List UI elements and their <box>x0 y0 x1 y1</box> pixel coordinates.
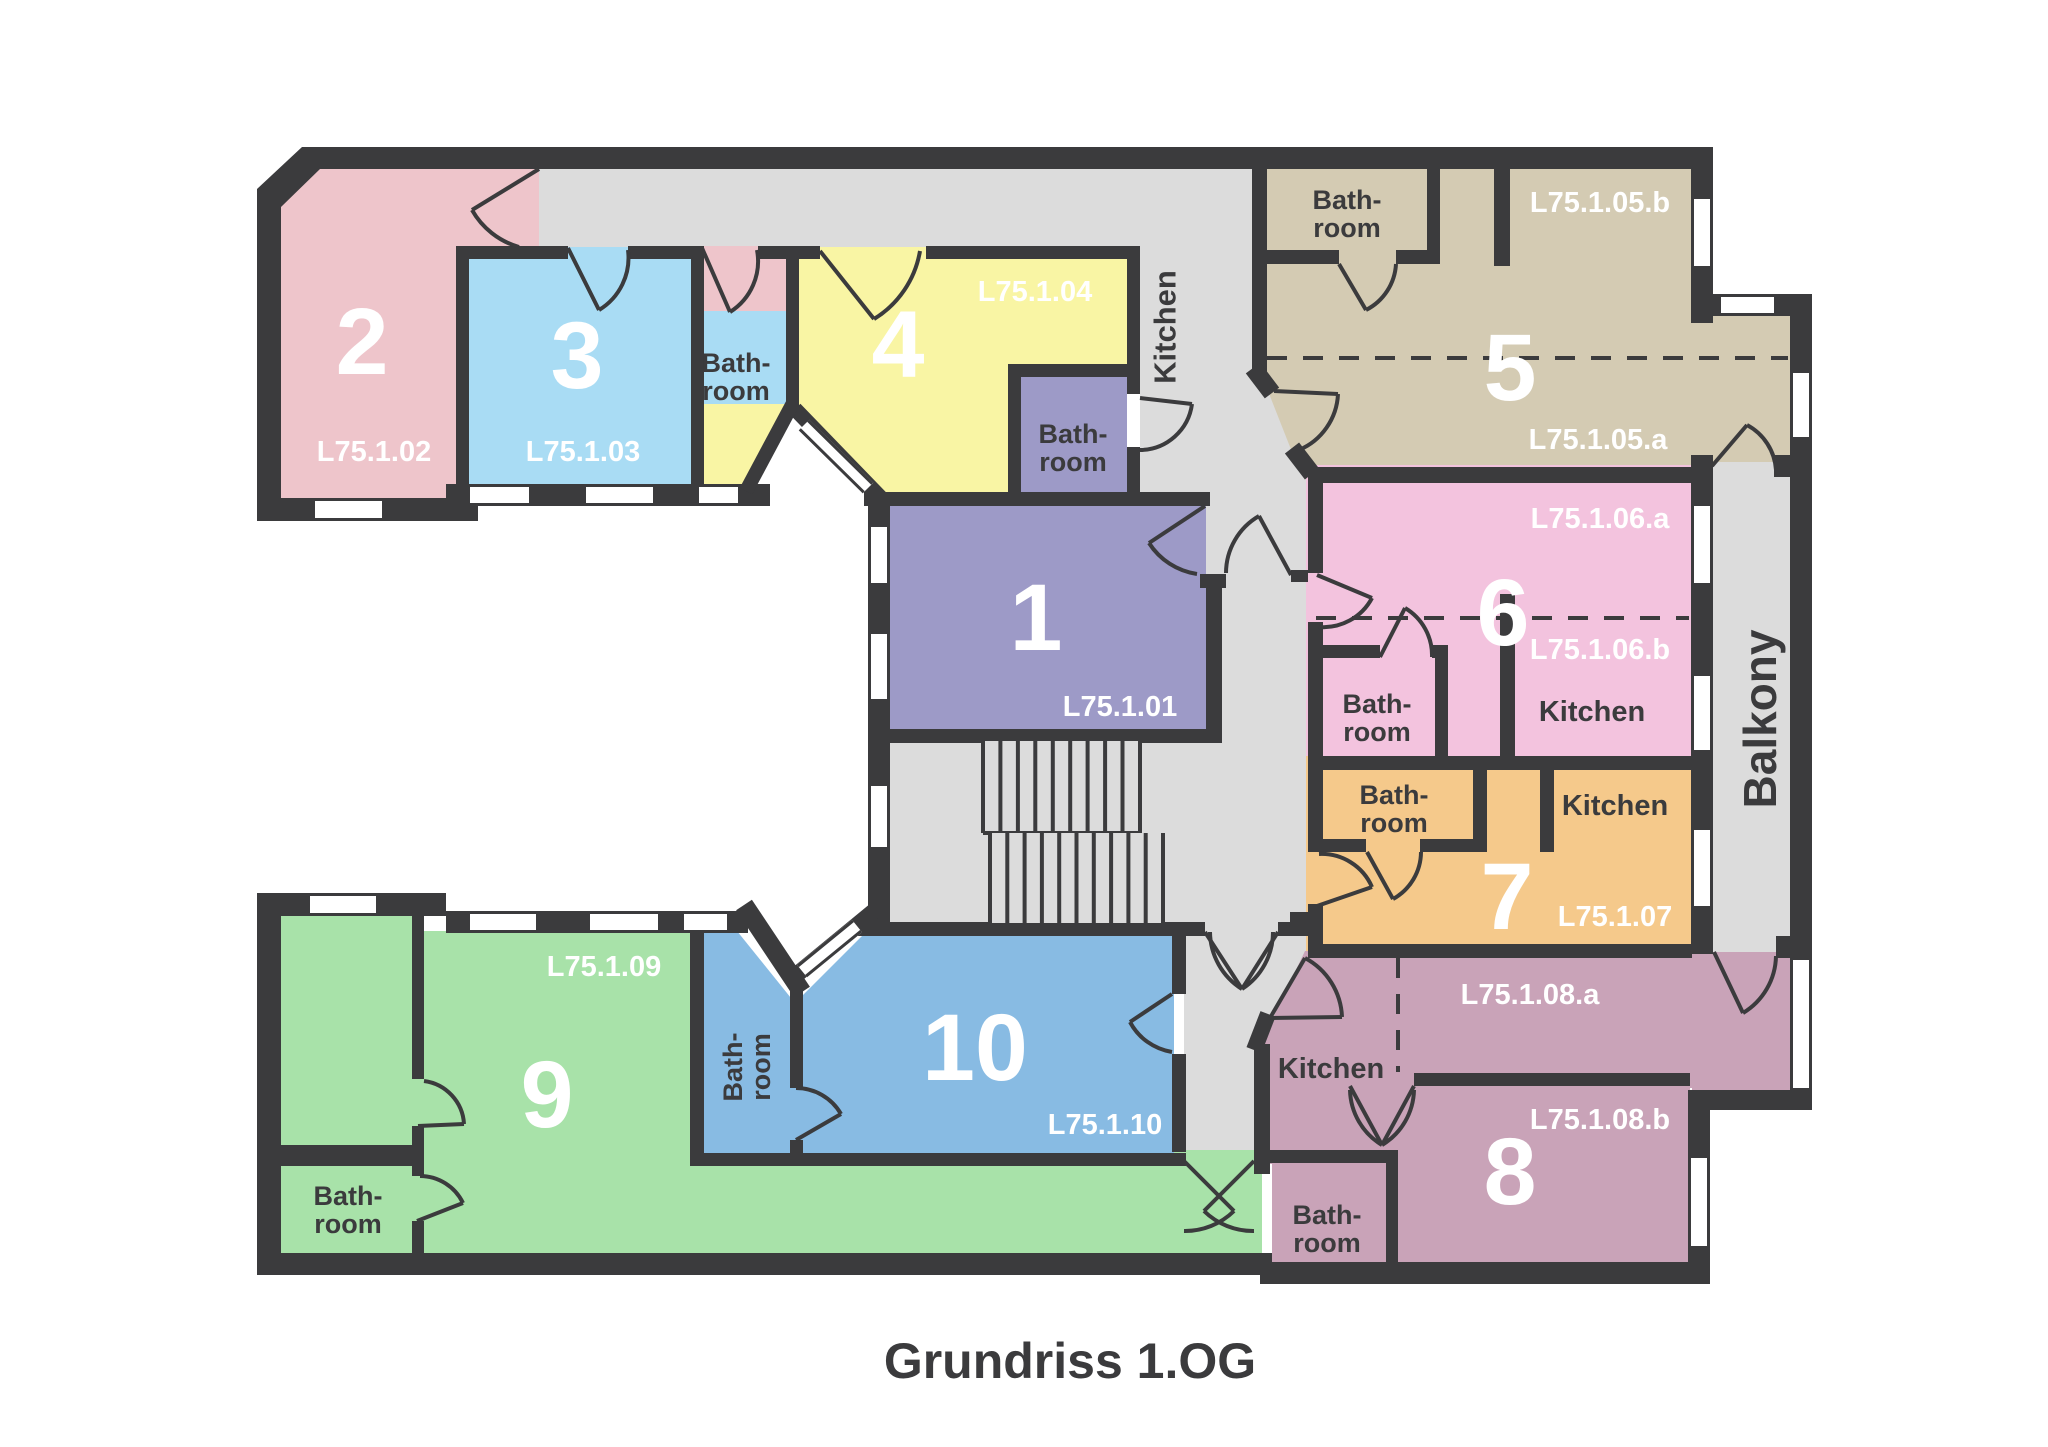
svg-text:Bath-: Bath- <box>702 348 771 378</box>
svg-text:Kitchen: Kitchen <box>1278 1053 1384 1085</box>
svg-text:room: room <box>1293 1228 1361 1258</box>
svg-text:8: 8 <box>1484 1119 1537 1225</box>
svg-text:L75.1.05.b: L75.1.05.b <box>1530 187 1670 219</box>
svg-text:room: room <box>1343 717 1411 747</box>
svg-text:room: room <box>702 376 770 406</box>
svg-text:L75.1.06.a: L75.1.06.a <box>1531 503 1671 535</box>
svg-text:1: 1 <box>1010 565 1063 671</box>
svg-text:L75.1.03: L75.1.03 <box>526 436 640 468</box>
svg-text:5: 5 <box>1484 315 1537 421</box>
svg-text:room: room <box>1313 213 1381 243</box>
svg-text:Bath-: Bath- <box>1313 185 1382 215</box>
svg-text:Bath-: Bath- <box>718 1033 748 1102</box>
svg-text:10: 10 <box>922 995 1028 1101</box>
svg-text:Balkony: Balkony <box>1734 629 1786 808</box>
svg-text:room: room <box>314 1209 382 1239</box>
svg-text:L75.1.04: L75.1.04 <box>978 276 1092 308</box>
svg-text:Bath-: Bath- <box>1343 689 1412 719</box>
svg-text:Kitchen: Kitchen <box>1539 696 1645 728</box>
svg-text:Kitchen: Kitchen <box>1148 270 1183 384</box>
svg-text:L75.1.08.a: L75.1.08.a <box>1461 979 1601 1011</box>
svg-text:7: 7 <box>1481 844 1534 950</box>
svg-text:6: 6 <box>1477 560 1530 666</box>
svg-text:2: 2 <box>336 289 389 395</box>
svg-text:L75.1.05.a: L75.1.05.a <box>1529 424 1669 456</box>
svg-text:room: room <box>1039 447 1107 477</box>
svg-text:L75.1.01: L75.1.01 <box>1063 691 1177 723</box>
svg-text:3: 3 <box>551 303 604 409</box>
svg-text:Bath-: Bath- <box>1039 419 1108 449</box>
svg-text:Bath-: Bath- <box>1360 780 1429 810</box>
svg-text:L75.1.06.b: L75.1.06.b <box>1530 634 1670 666</box>
svg-text:L75.1.02: L75.1.02 <box>317 436 431 468</box>
svg-text:Bath-: Bath- <box>1293 1200 1362 1230</box>
svg-text:room: room <box>746 1033 776 1101</box>
svg-text:L75.1.07: L75.1.07 <box>1558 901 1672 933</box>
svg-text:L75.1.09: L75.1.09 <box>547 951 661 983</box>
svg-text:Grundriss 1.OG: Grundriss 1.OG <box>884 1333 1256 1389</box>
svg-text:Kitchen: Kitchen <box>1562 790 1668 822</box>
svg-text:4: 4 <box>872 292 925 398</box>
svg-text:Bath-: Bath- <box>314 1181 383 1211</box>
svg-text:9: 9 <box>521 1042 574 1148</box>
svg-text:room: room <box>1360 808 1428 838</box>
svg-text:L75.1.08.b: L75.1.08.b <box>1530 1104 1670 1136</box>
svg-text:L75.1.10: L75.1.10 <box>1048 1109 1162 1141</box>
